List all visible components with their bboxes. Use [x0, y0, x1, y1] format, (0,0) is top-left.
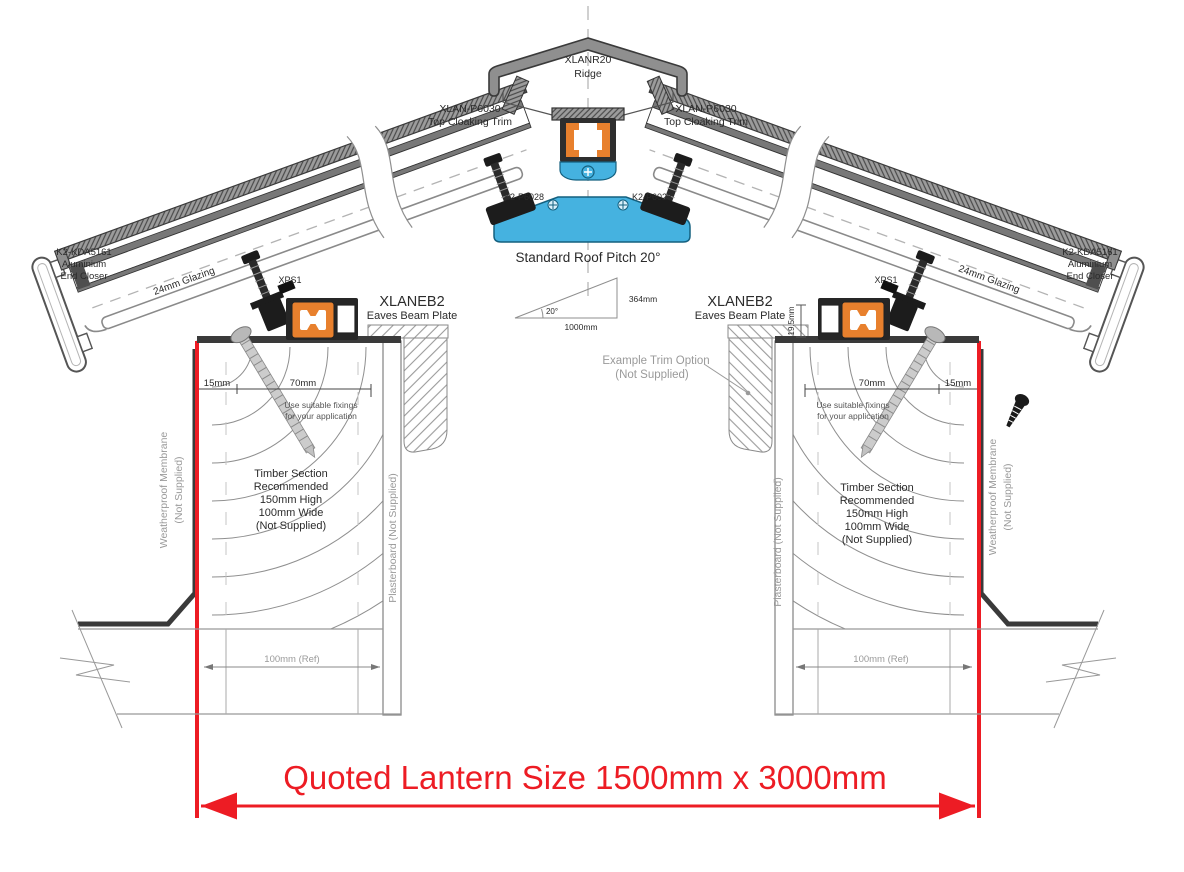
ridge-part-label: XLANR20	[565, 54, 612, 66]
cloaking-trim-left-name: Top Cloaking Trim	[428, 116, 512, 128]
timber-upstand-left	[60, 325, 594, 818]
timber-note-right: Timber Section Recommended 150mm High 10…	[840, 482, 915, 546]
dim-70mm-right: 70mm	[859, 378, 885, 389]
cloaking-trim-left-part: XLAN-P6030	[439, 103, 500, 115]
dim-15mm-right: 15mm	[945, 378, 971, 389]
membrane-left-line2: (Not Supplied)	[173, 456, 185, 523]
fixings-note-left-1: Use suitable fixings	[284, 400, 357, 410]
cloaking-trim-right-name: Top Cloaking Trim	[664, 116, 748, 128]
end-closer-right-line2: Aluminium	[1068, 259, 1112, 270]
wall-ref-left: 100mm (Ref)	[264, 654, 319, 665]
drawing-canvas: XLANR20 Ridge XLAN-P6030 Top Cloaking Tr…	[0, 0, 1184, 872]
membrane-left-line1: Weatherproof Membrane	[158, 432, 170, 549]
eaves-height-label: 19.5mm	[787, 306, 796, 335]
quoted-size-label: Quoted Lantern Size 1500mm x 3000mm	[283, 759, 887, 796]
end-closer-right-part: K2-KDA5161	[1062, 247, 1117, 258]
timber-note-left-4: (Not Supplied)	[256, 520, 326, 532]
cloaking-trim-right-part: XLAN-P6030	[675, 103, 736, 115]
plasterboard-left-label: Plasterboard (Not Supplied)	[387, 473, 399, 603]
end-closer-left-line3: End Closer	[61, 271, 108, 282]
trim-option-line2: (Not Supplied)	[615, 369, 689, 381]
pitch-rise-label: 364mm	[629, 294, 657, 304]
eaves-beam-right-part: XLANEB2	[707, 294, 772, 310]
timber-note-right-3: 100mm Wide	[845, 521, 910, 533]
screw-icon	[1001, 392, 1031, 430]
xps1-left-label: XPS1	[278, 275, 301, 285]
timber-note-right-4: (Not Supplied)	[842, 534, 912, 546]
roof-pitch-label: Standard Roof Pitch 20°	[516, 250, 661, 265]
timber-upstand-right	[582, 325, 1116, 818]
dim-15mm-left: 15mm	[204, 378, 230, 389]
timber-note-right-0: Timber Section	[840, 482, 914, 494]
timber-note-right-2: 150mm High	[846, 508, 908, 520]
timber-note-left-1: Recommended	[254, 481, 329, 493]
membrane-right-line2: (Not Supplied)	[1002, 463, 1014, 530]
timber-note-right-1: Recommended	[840, 495, 915, 507]
eaves-beam-left-part: XLANEB2	[379, 294, 444, 310]
timber-note-left-0: Timber Section	[254, 468, 328, 480]
eaves-beam-left-name: Eaves Beam Plate	[367, 310, 458, 322]
end-closer-left-part: K2-KDA5161	[56, 247, 111, 258]
end-closer-left-line2: Aluminium	[62, 259, 106, 270]
wall-ref-right: 100mm (Ref)	[853, 654, 908, 665]
trim-option-line1: Example Trim Option	[602, 355, 709, 367]
xps1-right-label: XPS1	[874, 275, 897, 285]
fixings-note-right-2: for your application	[817, 411, 889, 421]
fixings-note-left-2: for your application	[285, 411, 357, 421]
eaves-beam-right-name: Eaves Beam Plate	[695, 310, 786, 322]
ridge-name-label: Ridge	[574, 68, 602, 80]
pitch-angle-label: 20°	[546, 307, 558, 316]
plasterboard-right-label: Plasterboard (Not Supplied)	[772, 477, 784, 607]
fixings-note-right-1: Use suitable fixings	[816, 400, 889, 410]
ridge-clamp-right-label: K2-P6028	[632, 192, 672, 202]
timber-note-left-3: 100mm Wide	[259, 507, 324, 519]
timber-note-left-2: 150mm High	[260, 494, 322, 506]
pitch-triangle	[515, 278, 617, 318]
timber-note-left: Timber Section Recommended 150mm High 10…	[254, 468, 329, 532]
dim-70mm-left: 70mm	[290, 378, 316, 389]
membrane-right-line1: Weatherproof Membrane	[987, 439, 999, 556]
lantern-section-drawing: XLANR20 Ridge XLAN-P6030 Top Cloaking Tr…	[0, 0, 1184, 872]
ridge-clamp-left-label: K2-P6028	[504, 192, 544, 202]
pitch-run-label: 1000mm	[564, 322, 597, 332]
end-closer-right-line3: End Closer	[1067, 271, 1114, 282]
